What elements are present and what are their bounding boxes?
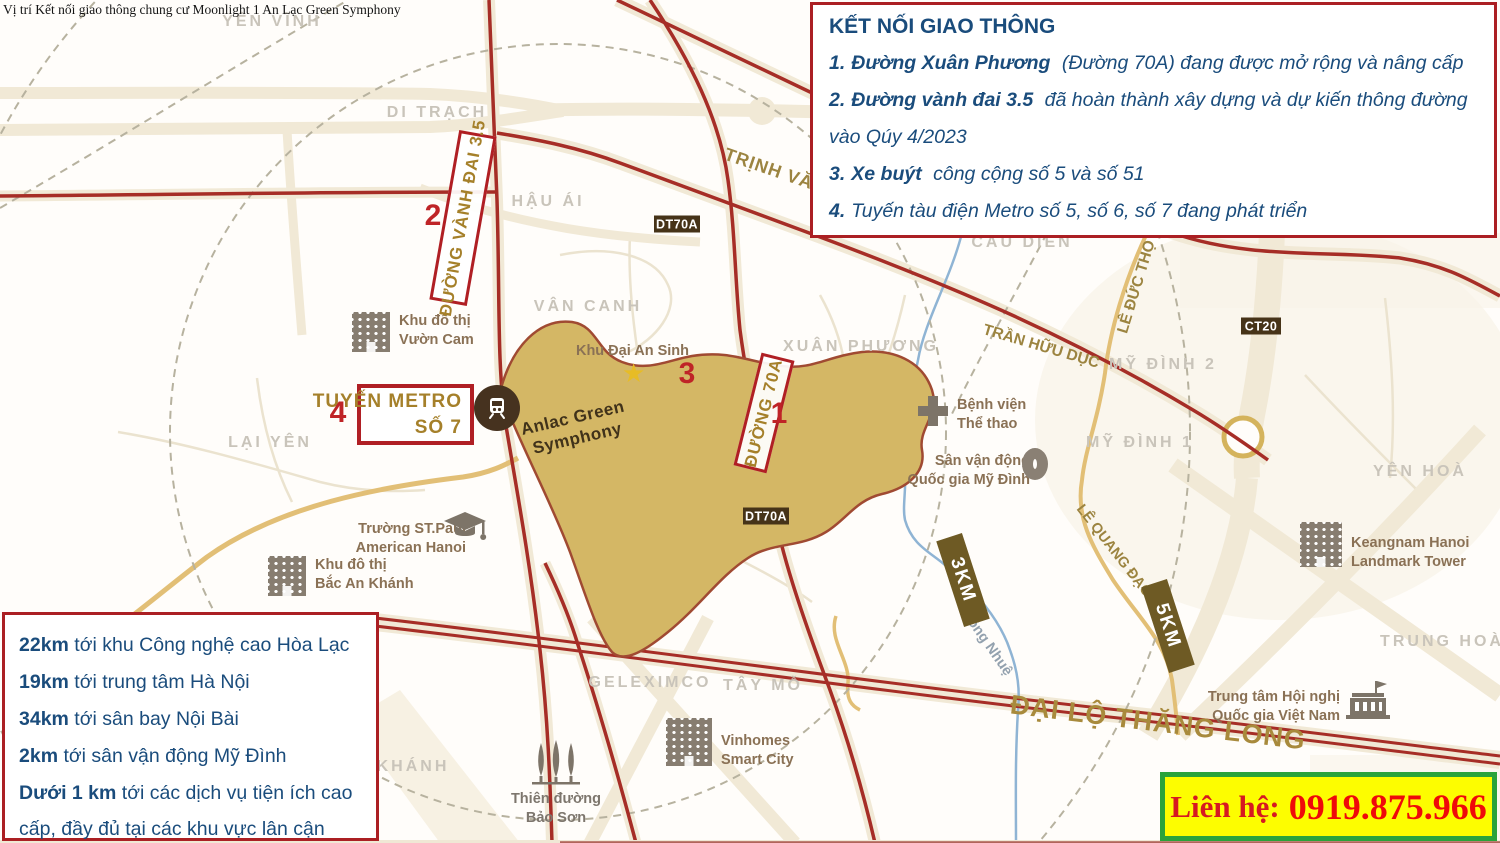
metro-line-2: SỐ 7 — [415, 415, 462, 441]
area-label-geleximco: GELEXIMCO — [588, 674, 711, 692]
badge-dt70a-south: DT70A — [743, 508, 789, 525]
info-item-4: 4.Tuyến tàu điện Metro số 5, số 6, số 7 … — [829, 193, 1478, 230]
landmark-vinhomes-smart-city: VinhomesSmart City — [666, 718, 794, 769]
distance-item-4: 2km tới sân vận động Mỹ Đình — [19, 738, 364, 775]
building-icon — [666, 718, 712, 766]
distance-panel: 22km tới khu Công nghệ cao Hòa Lạc 19km … — [2, 612, 379, 841]
convention-center-icon — [1344, 680, 1392, 727]
graduation-cap-icon — [444, 512, 490, 549]
marker-1: 1 — [771, 397, 788, 431]
distance-item-3: 34km tới sân bay Nội Bài — [19, 701, 364, 738]
landmark-keangnam: Keangnam HanoiLandmark Tower — [1300, 522, 1469, 571]
landmark-san-van-dong: Sân vận độngQuốc gia Mỹ Đình — [878, 452, 1030, 489]
star-icon: ★ — [622, 358, 645, 389]
marker-3: 3 — [679, 357, 696, 391]
map-container: YÊN VĨNH DI TRẠCH HẬU ÁI VÂN CANH XUÂN P… — [0, 0, 1500, 843]
distance-item-2: 19km tới trung tâm Hà Nội — [19, 664, 364, 701]
area-label-khanh: KHÁNH — [377, 758, 450, 776]
landmark-bao-son: Thiên đườngBảo Sơn — [498, 790, 614, 827]
contact-label: Liên hệ: — [1170, 789, 1279, 825]
building-icon — [352, 312, 390, 352]
info-panel-heading: KẾT NỐI GIAO THÔNG — [829, 15, 1478, 39]
area-label-xuan-phuong: XUÂN PHƯƠNG — [783, 338, 939, 356]
area-label-my-dinh-1: MỸ ĐÌNH 1 — [1086, 434, 1194, 452]
area-label-trung-hoa: TRUNG HOÀ — [1380, 633, 1500, 651]
landmark-hoi-nghi: Trung tâm Hội nghịQuốc gia Việt Nam — [1194, 688, 1340, 725]
badge-dt70a-north: DT70A — [654, 216, 700, 233]
area-label-hau-ai: HẬU ÁI — [511, 193, 584, 211]
area-label-tay-mo: TÂY MỖ — [723, 677, 803, 695]
marker-2: 2 — [425, 199, 442, 233]
landmark-benh-vien-the-thao: Bệnh việnThể thao — [918, 396, 1026, 433]
building-icon — [1300, 522, 1342, 567]
boxed-label-metro-7: TUYẾN METRO SỐ 7 — [357, 384, 474, 445]
page-title: Vị trí Kết nối giao thông chung cư Moonl… — [3, 2, 401, 18]
trees-icon — [528, 740, 584, 791]
contact-phone: 0919.875.966 — [1289, 786, 1487, 828]
contact-box: Liên hệ: 0919.875.966 — [1160, 772, 1497, 841]
landmark-bac-an-khanh: Khu đô thịBắc An Khánh — [268, 556, 414, 596]
info-item-1: 1.Đường Xuân Phương (Đường 70A) đang đượ… — [829, 45, 1478, 82]
area-label-my-dinh-2: MỸ ĐÌNH 2 — [1109, 356, 1217, 374]
metro-station-icon — [474, 385, 520, 431]
distance-item-1: 22km tới khu Công nghệ cao Hòa Lạc — [19, 627, 364, 664]
area-label-van-canh: VÂN CANH — [534, 298, 642, 316]
hospital-cross-icon — [918, 396, 948, 426]
area-label-lai-yen: LẠI YÊN — [228, 434, 312, 452]
info-item-3: 3.Xe buýt công cộng số 5 và số 51 — [829, 156, 1478, 193]
landmark-st-paul: Trường ST.PaulAmerican Hanoi — [308, 520, 466, 557]
building-icon — [268, 556, 306, 596]
badge-ct20: CT20 — [1241, 318, 1281, 335]
area-label-yen-hoa: YÊN HOÀ — [1373, 463, 1467, 481]
traffic-info-panel: KẾT NỐI GIAO THÔNG 1.Đường Xuân Phương (… — [810, 2, 1497, 238]
stadium-icon — [1022, 448, 1048, 480]
info-item-2: 2.Đường vành đai 3.5 đã hoàn thành xây d… — [829, 82, 1478, 156]
marker-4: 4 — [330, 396, 347, 430]
distance-item-5: Dưới 1 km tới các dịch vụ tiện ích cao c… — [19, 775, 364, 843]
